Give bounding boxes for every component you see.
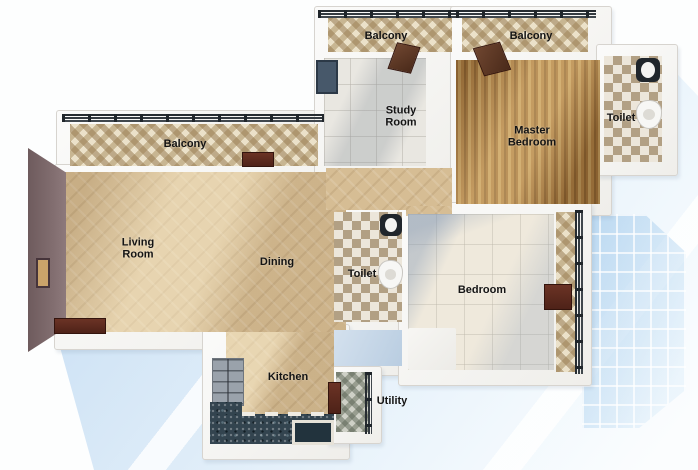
balcony-study-railing — [318, 10, 460, 18]
kitchen-cabinet — [212, 358, 244, 406]
toilet-master-sink — [636, 58, 660, 82]
study-window — [316, 60, 338, 94]
bedroom-balcony-railing — [575, 210, 583, 374]
floor-plan-canvas: Balcony Living Room Dining Balcony Study… — [0, 0, 698, 470]
bedroom-balcony-door — [544, 284, 572, 310]
entrance-door — [54, 318, 106, 334]
counter-edge-tiles — [242, 412, 332, 416]
living-dining-floor — [64, 172, 346, 332]
balcony-living-door — [242, 152, 274, 167]
room-label-balcony-study: Balcony — [365, 30, 408, 42]
utility-door — [328, 382, 341, 414]
room-label-balcony-master: Balcony — [510, 30, 553, 42]
room-label-toilet-common: Toilet — [348, 268, 377, 280]
room-label-master-bedroom: Master Bedroom — [500, 125, 564, 150]
kitchen-sink — [292, 420, 334, 445]
sunlight-shaft — [64, 172, 346, 332]
room-label-utility: Utility — [377, 395, 408, 407]
room-label-bedroom: Bedroom — [458, 284, 506, 296]
hallway-floor — [326, 168, 452, 210]
balcony-master-railing — [456, 10, 596, 18]
room-label-dining: Dining — [260, 256, 294, 268]
room-label-kitchen: Kitchen — [268, 371, 308, 383]
room-label-study: Study Room — [377, 105, 425, 130]
room-label-balcony-living: Balcony — [164, 138, 207, 150]
passage-floor — [334, 330, 402, 366]
window-light-grid — [582, 214, 686, 428]
bedroom-wardrobe-nook — [408, 328, 456, 370]
room-label-living: Living Room — [114, 237, 162, 262]
wall-frame-decor — [36, 258, 50, 288]
toilet-common-sink — [380, 214, 402, 236]
balcony-living-railing — [62, 114, 324, 122]
room-label-toilet-master: Toilet — [607, 112, 636, 124]
utility-railing — [365, 372, 372, 434]
